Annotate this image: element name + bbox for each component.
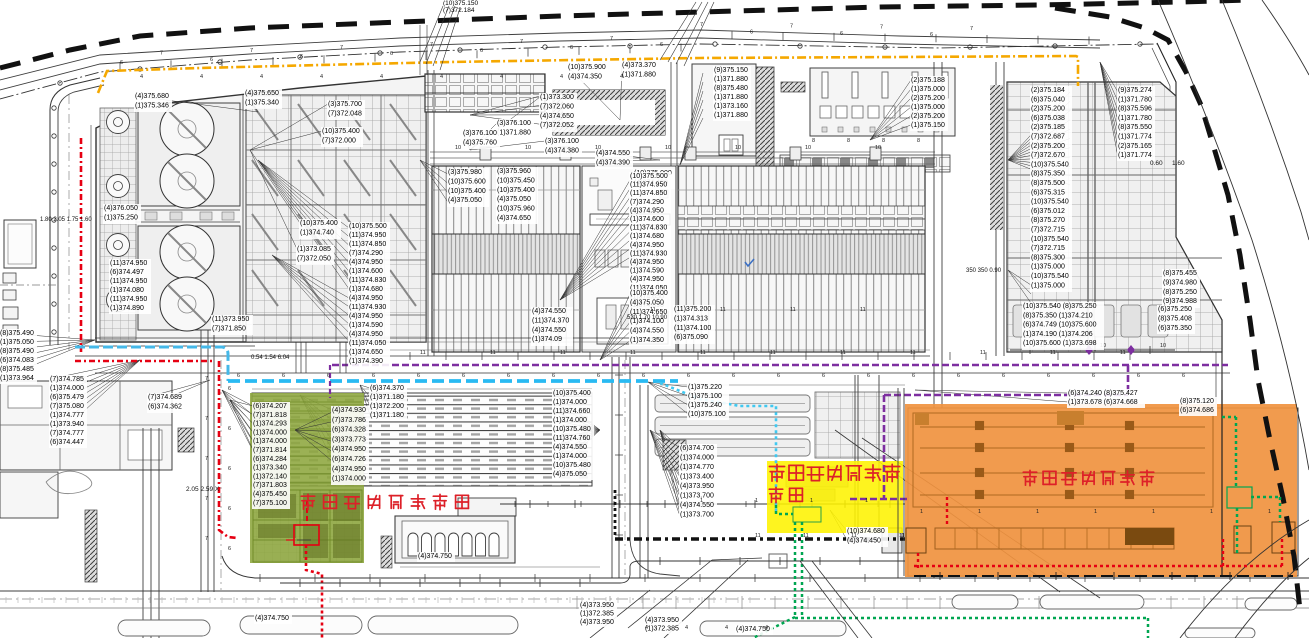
svg-text:(7)372.184: (7)372.184 (443, 7, 475, 14)
svg-text:(1)373.940: (1)373.940 (50, 421, 84, 428)
svg-text:(6)374.207: (6)374.207 (253, 403, 287, 410)
svg-text:(1)374.350: (1)374.350 (630, 337, 664, 344)
svg-text:6: 6 (327, 373, 330, 379)
svg-text:(11)374.830: (11)374.830 (630, 225, 667, 232)
svg-text:(3)376.100: (3)376.100 (463, 130, 497, 137)
svg-text:7: 7 (205, 456, 208, 462)
svg-text:(8)375.490: (8)375.490 (0, 330, 34, 337)
svg-text:(10)375.960: (10)375.960 (497, 206, 535, 213)
svg-text:(6)374.749 (10)375.600: (6)374.749 (10)375.600 (1023, 322, 1097, 329)
svg-text:6: 6 (642, 373, 645, 379)
svg-text:(1)374.000: (1)374.000 (253, 429, 287, 436)
svg-text:(1)372.200: (1)372.200 (370, 403, 404, 410)
svg-text:10: 10 (875, 145, 881, 151)
svg-text:(6)375.250: (6)375.250 (1158, 306, 1192, 313)
svg-text:11: 11 (910, 350, 916, 356)
svg-text:11: 11 (860, 307, 866, 313)
svg-text:(4)374.950: (4)374.950 (630, 242, 664, 249)
svg-text:1: 1 (810, 498, 813, 504)
svg-text:(7)371.814: (7)371.814 (253, 447, 287, 454)
svg-text:(8)375.270: (8)375.270 (1031, 217, 1065, 224)
svg-text:8: 8 (812, 138, 815, 144)
svg-text:(4)374.650: (4)374.650 (540, 113, 574, 120)
svg-text:(1)374.313: (1)374.313 (674, 315, 708, 322)
svg-text:7: 7 (610, 36, 613, 42)
svg-text:(1)374.740: (1)374.740 (300, 229, 334, 236)
svg-text:(4)374.930: (4)374.930 (332, 407, 366, 414)
svg-text:(4)374.350: (4)374.350 (568, 73, 602, 80)
svg-text:(10)375.540: (10)375.540 (1031, 273, 1069, 280)
svg-text:11: 11 (755, 533, 761, 539)
svg-text:(8)375.490: (8)375.490 (0, 348, 34, 355)
svg-text:(1)371.780: (1)371.780 (1118, 115, 1152, 122)
svg-text:(7)372.687: (7)372.687 (1031, 134, 1065, 141)
svg-text:(4)373.370: (4)373.370 (622, 62, 656, 69)
svg-text:1: 1 (700, 498, 703, 504)
svg-text:2.05 2.59 X: 2.05 2.59 X (186, 486, 220, 493)
svg-text:(4)374.750: (4)374.750 (255, 615, 289, 622)
svg-text:(10)375.500: (10)375.500 (630, 173, 668, 180)
svg-text:(8)375.485: (8)375.485 (0, 366, 34, 373)
svg-text:8: 8 (917, 138, 920, 144)
svg-text:(1)373.160: (1)373.160 (714, 103, 748, 110)
svg-text:6: 6 (1182, 373, 1185, 379)
svg-text:4: 4 (645, 625, 648, 631)
svg-text:1: 1 (755, 498, 758, 504)
svg-text:6: 6 (732, 373, 735, 379)
svg-text:10: 10 (805, 145, 811, 151)
svg-text:(1)373.700: (1)373.700 (680, 493, 714, 500)
svg-text:6: 6 (840, 31, 843, 37)
svg-text:6: 6 (867, 373, 870, 379)
svg-text:(1)374.600: (1)374.600 (630, 216, 664, 223)
svg-text:(10)375.100: (10)375.100 (688, 411, 726, 418)
svg-text:(8)375.455: (8)375.455 (1163, 270, 1197, 277)
svg-text:10: 10 (1160, 343, 1166, 349)
svg-text:1.60: 1.60 (1172, 160, 1185, 167)
svg-text:(7)372.715: (7)372.715 (1031, 245, 1065, 252)
svg-text:10: 10 (595, 145, 601, 151)
svg-text:(1)375.000: (1)375.000 (1031, 282, 1065, 289)
svg-text:(4)374.550: (4)374.550 (532, 308, 566, 315)
svg-text:11: 11 (700, 350, 706, 356)
svg-text:6: 6 (912, 373, 915, 379)
svg-text:(4)374.950: (4)374.950 (349, 259, 383, 266)
svg-text:(7)371.818: (7)371.818 (253, 412, 287, 419)
svg-text:(9)375.150: (9)375.150 (714, 67, 748, 74)
svg-text:(1)375.000: (1)375.000 (1031, 264, 1065, 271)
svg-text:(1)374.000: (1)374.000 (332, 476, 366, 483)
svg-text:(6)374.083: (6)374.083 (0, 357, 34, 364)
svg-text:6: 6 (228, 386, 231, 392)
svg-text:(10)375.500: (10)375.500 (349, 223, 387, 230)
svg-text:(7)372.052: (7)372.052 (540, 122, 574, 129)
svg-text:(1)375.100: (1)375.100 (688, 393, 722, 400)
svg-text:(1)371.880: (1)371.880 (497, 129, 531, 136)
svg-text:(1)371.180: (1)371.180 (370, 394, 404, 401)
svg-text:(4)373.950: (4)373.950 (645, 617, 679, 624)
svg-text:(4)375.760: (4)375.760 (463, 139, 497, 146)
svg-text:(11)374.930: (11)374.930 (630, 250, 667, 257)
svg-text:(1)374.650: (1)374.650 (349, 349, 383, 356)
svg-text:(10)375.900: (10)375.900 (568, 64, 606, 71)
svg-text:(6)375.012: (6)375.012 (1031, 208, 1065, 215)
svg-text:(1)374.190 (1)374.206: (1)374.190 (1)374.206 (1023, 331, 1093, 338)
svg-text:(6)374.497: (6)374.497 (110, 269, 144, 276)
svg-text:(7)374.777: (7)374.777 (50, 430, 84, 437)
svg-text:(6)374.447: (6)374.447 (50, 439, 84, 446)
svg-text:11: 11 (630, 350, 636, 356)
svg-text:(1)375.220: (1)375.220 (688, 384, 722, 391)
svg-text:(1)373.678 (6)374.668: (1)373.678 (6)374.668 (1068, 399, 1138, 406)
svg-text:(11)374.950: (11)374.950 (110, 278, 147, 285)
svg-text:(6)375.315: (6)375.315 (1031, 189, 1065, 196)
svg-text:(4)375.680: (4)375.680 (135, 93, 169, 100)
svg-text:(1)371.880: (1)371.880 (714, 76, 748, 83)
svg-text:0.60: 0.60 (1150, 160, 1163, 167)
svg-text:(7)374.290: (7)374.290 (349, 250, 383, 257)
svg-text:(7)372.048: (7)372.048 (328, 110, 362, 117)
svg-text:(8)375.350: (8)375.350 (1031, 171, 1065, 178)
svg-text:(1)373.964: (1)373.964 (0, 375, 34, 382)
svg-text:(11)374.850: (11)374.850 (630, 190, 667, 197)
svg-text:1: 1 (920, 509, 923, 515)
svg-text:11: 11 (1120, 350, 1126, 356)
svg-text:(9)374.980: (9)374.980 (1163, 279, 1197, 286)
svg-text:10: 10 (665, 145, 671, 151)
svg-text:(11)374.950: (11)374.950 (110, 260, 147, 267)
svg-text:(4)373.950: (4)373.950 (580, 619, 614, 626)
svg-text:(7)372.050: (7)372.050 (297, 255, 331, 262)
svg-text:1: 1 (1210, 509, 1213, 515)
svg-text:(1)371.780: (1)371.780 (1118, 96, 1152, 103)
svg-text:11: 11 (650, 307, 656, 313)
svg-text:(1)374.000: (1)374.000 (50, 385, 84, 392)
svg-text:6: 6 (1092, 373, 1095, 379)
svg-text:(1)373.400: (1)373.400 (680, 474, 714, 481)
svg-text:7: 7 (250, 48, 253, 54)
svg-text:(1)375.346: (1)375.346 (135, 102, 169, 109)
svg-text:(6)375.350: (6)375.350 (1158, 325, 1192, 332)
svg-text:(10)375.480: (10)375.480 (553, 426, 591, 433)
svg-text:11: 11 (560, 350, 566, 356)
svg-text:(7)372.670: (7)372.670 (1031, 152, 1065, 159)
svg-text:4: 4 (500, 74, 503, 80)
svg-text:7: 7 (205, 496, 208, 502)
svg-text:6: 6 (300, 54, 303, 60)
svg-text:(4)374.950: (4)374.950 (349, 295, 383, 302)
svg-text:(1)375.050: (1)375.050 (0, 339, 34, 346)
svg-text:6: 6 (480, 48, 483, 54)
svg-text:(2)375.184: (2)375.184 (1031, 87, 1065, 94)
svg-text:11: 11 (899, 533, 905, 539)
svg-text:(1)373.085: (1)373.085 (297, 246, 331, 253)
svg-text:(6)374.362: (6)374.362 (148, 403, 182, 410)
svg-text:(3)376.100: (3)376.100 (497, 120, 531, 127)
svg-text:(1)371.880: (1)371.880 (714, 112, 748, 119)
svg-text:(10)375.400: (10)375.400 (497, 187, 535, 194)
svg-text:(8)375.596: (8)375.596 (1118, 106, 1152, 113)
svg-text:(7)375.100: (7)375.100 (253, 500, 287, 507)
svg-text:(8)375.480: (8)375.480 (714, 85, 748, 92)
svg-text:(1)374.590: (1)374.590 (349, 322, 383, 329)
svg-text:(1)375.240: (1)375.240 (688, 402, 722, 409)
svg-text:(4)374.380: (4)374.380 (545, 147, 579, 154)
svg-text:(4)375.050: (4)375.050 (630, 299, 664, 306)
svg-text:7: 7 (340, 45, 343, 51)
svg-text:(7)374.785: (7)374.785 (50, 376, 84, 383)
svg-text:6: 6 (822, 373, 825, 379)
svg-text:7: 7 (205, 376, 208, 382)
svg-text:6: 6 (228, 546, 231, 552)
svg-text:(3)373.773: (3)373.773 (332, 436, 366, 443)
svg-text:(10)375.540: (10)375.540 (1031, 199, 1069, 206)
svg-text:(4)375.050: (4)375.050 (448, 197, 482, 204)
svg-text:(6)374.726: (6)374.726 (332, 456, 366, 463)
svg-text:4: 4 (765, 625, 768, 631)
svg-text:11: 11 (790, 307, 796, 313)
svg-text:(1)371.774: (1)371.774 (1118, 152, 1152, 159)
svg-text:(4)375.650: (4)375.650 (245, 90, 279, 97)
svg-text:(3)375.960: (3)375.960 (497, 168, 531, 175)
svg-text:11: 11 (720, 307, 726, 313)
svg-text:6: 6 (372, 373, 375, 379)
svg-text:(7)374.689: (7)374.689 (148, 394, 182, 401)
svg-text:(4)374.950: (4)374.950 (332, 446, 366, 453)
svg-text:(4)374.950: (4)374.950 (332, 466, 366, 473)
svg-text:6: 6 (228, 466, 231, 472)
svg-text:(1)374.890: (1)374.890 (110, 305, 144, 312)
svg-text:(10)375.600 (1)373.698: (10)375.600 (1)373.698 (1023, 340, 1097, 347)
svg-text:(1)372.385: (1)372.385 (580, 611, 614, 618)
svg-text:6: 6 (1047, 373, 1050, 379)
svg-text:8: 8 (847, 138, 850, 144)
svg-text:(1)374.770: (1)374.770 (680, 464, 714, 471)
svg-text:6: 6 (930, 32, 933, 38)
svg-text:4: 4 (200, 74, 203, 80)
svg-text:6: 6 (570, 45, 573, 51)
svg-text:(1)375.250: (1)375.250 (104, 214, 138, 221)
svg-text:(6)374.370: (6)374.370 (370, 385, 404, 392)
svg-text:0.54 1.54 6.04: 0.54 1.54 6.04 (251, 355, 290, 361)
svg-text:(11)374.950: (11)374.950 (630, 182, 667, 189)
svg-text:(11)374.370: (11)374.370 (532, 317, 569, 324)
svg-text:(11)375.200: (11)375.200 (674, 306, 711, 313)
svg-text:350 350 0.90: 350 350 0.90 (966, 268, 1002, 274)
svg-text:(11)373.950: (11)373.950 (212, 316, 249, 323)
svg-text:(10)375.480: (10)375.480 (553, 462, 591, 469)
svg-text:7: 7 (430, 42, 433, 48)
svg-text:4: 4 (725, 625, 728, 631)
svg-text:7: 7 (880, 25, 883, 31)
svg-text:(1)375.000: (1)375.000 (911, 104, 945, 111)
svg-text:(8)375.350 (1)374.210: (8)375.350 (1)374.210 (1023, 312, 1093, 319)
svg-text:6: 6 (228, 506, 231, 512)
svg-text:1: 1 (1094, 509, 1097, 515)
svg-text:11: 11 (803, 533, 809, 539)
svg-text:(9)375.274: (9)375.274 (1118, 87, 1152, 94)
svg-text:6: 6 (282, 373, 285, 379)
svg-text:(8)375.408: (8)375.408 (1158, 315, 1192, 322)
svg-text:(10)375.400: (10)375.400 (300, 220, 338, 227)
svg-text:(7)374.290: (7)374.290 (630, 199, 664, 206)
svg-text:6: 6 (417, 373, 420, 379)
svg-text:6: 6 (210, 57, 213, 63)
svg-text:4: 4 (140, 74, 143, 80)
svg-text:(11)374.100: (11)374.100 (674, 325, 711, 332)
svg-text:(4)374.550: (4)374.550 (553, 444, 587, 451)
svg-text:6: 6 (1002, 373, 1005, 379)
svg-text:(1)374.590: (1)374.590 (630, 268, 664, 275)
svg-text:(2)375.200: (2)375.200 (911, 113, 945, 120)
svg-text:(3)376.100: (3)376.100 (545, 138, 579, 145)
svg-text:6: 6 (507, 373, 510, 379)
svg-text:10: 10 (455, 145, 461, 151)
svg-text:(7)372.000: (7)372.000 (322, 137, 356, 144)
svg-text:6: 6 (1137, 373, 1140, 379)
svg-text:11: 11 (490, 350, 496, 356)
svg-text:(4)374.550: (4)374.550 (532, 327, 566, 334)
svg-text:(4)375.050: (4)375.050 (497, 196, 531, 203)
svg-text:(11)374.760: (11)374.760 (553, 435, 590, 442)
svg-text:(10)375.400: (10)375.400 (553, 390, 591, 397)
svg-text:4: 4 (440, 74, 443, 80)
svg-text:(6)374.240 (8)375.427: (6)374.240 (8)375.427 (1068, 390, 1138, 397)
svg-text:11: 11 (770, 350, 776, 356)
svg-text:(1)371.880: (1)371.880 (622, 71, 656, 78)
svg-text:(9)374.988: (9)374.988 (1163, 298, 1197, 305)
svg-text:(6)375.038: (6)375.038 (1031, 115, 1065, 122)
svg-text:11: 11 (840, 350, 846, 356)
svg-text:7: 7 (790, 23, 793, 29)
svg-text:(1)375.150: (1)375.150 (911, 122, 945, 129)
svg-text:(1)371.774: (1)371.774 (1118, 134, 1152, 141)
svg-text:7: 7 (970, 26, 973, 32)
svg-text:(8)375.550: (8)375.550 (1118, 124, 1152, 131)
svg-text:(11)374.660: (11)374.660 (553, 408, 590, 415)
svg-text:(10)375.540: (10)375.540 (1031, 161, 1069, 168)
svg-text:(2)375.188: (2)375.188 (911, 77, 945, 84)
svg-text:6: 6 (957, 373, 960, 379)
svg-text:(1)371.180: (1)371.180 (370, 412, 404, 419)
svg-text:(10)375.540 (8)375.250: (10)375.540 (8)375.250 (1023, 303, 1097, 310)
svg-text:(2)375.200: (2)375.200 (911, 95, 945, 102)
svg-text:11: 11 (980, 350, 986, 356)
svg-text:7: 7 (520, 39, 523, 45)
svg-text:(3)375.700: (3)375.700 (328, 101, 362, 108)
svg-text:(1)375.340: (1)375.340 (245, 99, 279, 106)
svg-text:(8)375.120: (8)375.120 (1180, 398, 1214, 405)
svg-text:(4)374.950: (4)374.950 (630, 259, 664, 266)
svg-text:(11)374.950: (11)374.950 (110, 296, 147, 303)
svg-text:4: 4 (380, 74, 383, 80)
svg-text:4: 4 (685, 625, 688, 631)
svg-text:(7)371.803: (7)371.803 (253, 482, 287, 489)
svg-text:6: 6 (660, 42, 663, 48)
svg-text:(1)374.390: (1)374.390 (349, 358, 383, 365)
svg-text:(8)375.250: (8)375.250 (1163, 289, 1197, 296)
svg-text:11: 11 (1050, 350, 1056, 356)
svg-text:1: 1 (865, 498, 868, 504)
svg-text:(4)373.950: (4)373.950 (580, 602, 614, 609)
svg-text:(6)374.700: (6)374.700 (680, 445, 714, 452)
svg-text:(4)374.950: (4)374.950 (630, 207, 664, 214)
svg-text:(1)373.340: (1)373.340 (253, 465, 287, 472)
svg-text:(4)374.550: (4)374.550 (680, 502, 714, 509)
svg-text:(4)375.450: (4)375.450 (253, 491, 287, 498)
svg-text:(4)374.950: (4)374.950 (630, 276, 664, 283)
svg-text:(7)371.850: (7)371.850 (212, 325, 246, 332)
svg-text:(1)373.300: (1)373.300 (540, 94, 574, 101)
svg-text:(10)375.540: (10)375.540 (1031, 236, 1069, 243)
svg-text:(4)374.950: (4)374.950 (349, 331, 383, 338)
svg-text:11: 11 (420, 350, 426, 356)
svg-text:(10)375.400: (10)375.400 (322, 128, 360, 135)
svg-text:(4)374.950: (4)374.950 (349, 313, 383, 320)
svg-text:10: 10 (735, 145, 741, 151)
svg-text:(6)375.479: (6)375.479 (50, 394, 84, 401)
svg-text:6: 6 (237, 373, 240, 379)
svg-text:(1)375.000: (1)375.000 (911, 86, 945, 93)
svg-text:(1)374.600: (1)374.600 (349, 268, 383, 275)
svg-text:(2)375.165: (2)375.165 (1118, 143, 1152, 150)
svg-text:(10)375.400: (10)375.400 (448, 188, 486, 195)
svg-text:(4)374.750: (4)374.750 (418, 553, 452, 560)
svg-text:4: 4 (620, 74, 623, 80)
svg-text:(1)374.09: (1)374.09 (532, 336, 562, 343)
svg-text:1.80 2.05 1.75 1.60: 1.80 2.05 1.75 1.60 (40, 217, 92, 223)
svg-text:6: 6 (228, 426, 231, 432)
svg-text:(6)375.040: (6)375.040 (1031, 96, 1065, 103)
svg-text:(4)373.950: (4)373.950 (680, 483, 714, 490)
svg-text:(1)374.000: (1)374.000 (553, 453, 587, 460)
svg-text:4: 4 (260, 74, 263, 80)
svg-text:(6)374.686: (6)374.686 (1180, 407, 1214, 414)
svg-text:(7)372.715: (7)372.715 (1031, 227, 1065, 234)
svg-text:6: 6 (777, 373, 780, 379)
svg-text:(11)374.850: (11)374.850 (349, 241, 386, 248)
svg-text:(1)373.700: (1)373.700 (680, 512, 714, 519)
svg-text:10: 10 (525, 145, 531, 151)
svg-text:1: 1 (1268, 509, 1271, 515)
svg-text:7: 7 (205, 416, 208, 422)
svg-text:(2)375.200: (2)375.200 (1031, 143, 1065, 150)
svg-text:11: 11 (851, 533, 857, 539)
svg-text:4: 4 (320, 74, 323, 80)
svg-text:1: 1 (978, 509, 981, 515)
svg-text:(1)374.000: (1)374.000 (253, 438, 287, 445)
svg-text:(4)374.550: (4)374.550 (630, 328, 664, 335)
svg-text:(1)374.000: (1)374.000 (680, 455, 714, 462)
svg-text:(6)374.328: (6)374.328 (332, 427, 366, 434)
svg-text:8: 8 (882, 138, 885, 144)
svg-text:6: 6 (552, 373, 555, 379)
svg-text:(10)375.450: (10)375.450 (497, 177, 535, 184)
svg-text:7: 7 (160, 51, 163, 57)
svg-text:(1)374.680: (1)374.680 (349, 286, 383, 293)
svg-text:(4)376.050: (4)376.050 (104, 205, 138, 212)
svg-text:(4)374.390: (4)374.390 (596, 159, 630, 166)
svg-text:6: 6 (120, 60, 123, 66)
svg-text:(1)374.000: (1)374.000 (553, 417, 587, 424)
svg-text:(4)374.650: (4)374.650 (497, 215, 531, 222)
svg-text:(1)374.000: (1)374.000 (553, 399, 587, 406)
svg-text:(1)371.880: (1)371.880 (714, 94, 748, 101)
svg-text:(10)375.400: (10)375.400 (630, 290, 668, 297)
svg-text:1: 1 (1152, 509, 1155, 515)
svg-text:6: 6 (462, 373, 465, 379)
svg-text:(1)372.385: (1)372.385 (645, 626, 679, 633)
